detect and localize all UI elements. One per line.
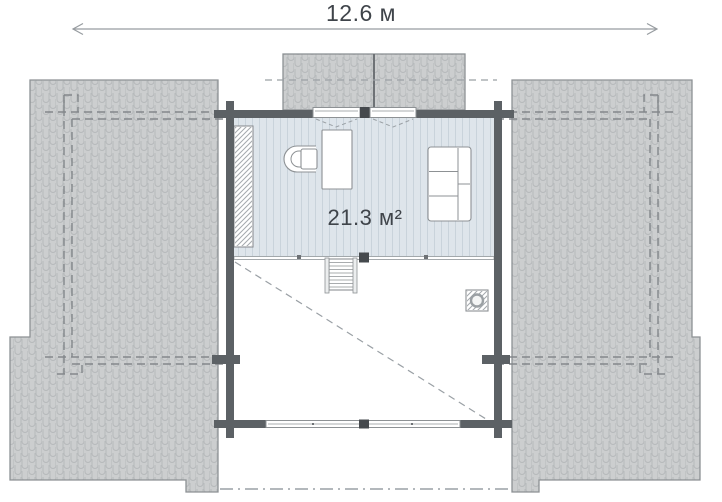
- window-south: [266, 420, 460, 429]
- roof-left: [10, 80, 218, 492]
- staircase: [325, 258, 357, 293]
- window-mullion-north: [360, 107, 370, 118]
- chimney-flue: [466, 290, 488, 311]
- dormer-roof: [283, 54, 465, 110]
- desk-chair: [284, 146, 317, 172]
- dimension-label: 12.6 м: [8, 0, 714, 27]
- room-area-label: 21.3 м²: [279, 205, 451, 231]
- desk: [322, 130, 352, 189]
- wardrobe: [234, 126, 253, 247]
- roof-right: [512, 80, 700, 492]
- ceiling-slope-line: [235, 262, 486, 419]
- attic-floor-plan: 12.6 м 21.3 м²: [0, 0, 722, 502]
- plan-drawing: [0, 0, 722, 502]
